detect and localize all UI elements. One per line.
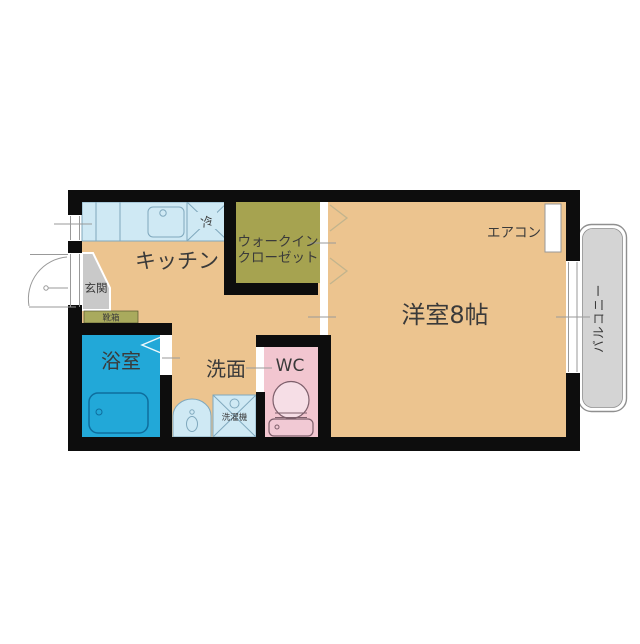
western-room-label: 洋室8帖 <box>401 301 488 329</box>
toilet-icon <box>269 382 313 437</box>
closet-and-hall-opening <box>320 202 328 342</box>
kitchen-bath-wall <box>68 323 172 335</box>
toilet-tank <box>269 419 313 436</box>
wc-top-wall <box>256 335 331 347</box>
washing-machine-icon: 洗濯機 <box>213 395 256 437</box>
wc-door-opening <box>256 347 264 392</box>
door-swing-arc <box>28 257 67 306</box>
closet-label-line1: ウォークイン <box>238 234 319 250</box>
washing-machine-label: 洗濯機 <box>222 412 248 423</box>
closet-bottom-wall <box>224 283 318 295</box>
wall-top <box>68 190 580 202</box>
closet-label-line2: クローゼット <box>238 250 319 266</box>
bath-right-wall <box>160 375 172 437</box>
entrance-door-icon <box>28 254 79 307</box>
door-knob-dot <box>44 286 48 290</box>
shoe-box-label: 靴箱 <box>102 313 120 324</box>
wc-label: WC <box>276 356 305 376</box>
floor-plan: 冷 洗濯機 <box>0 0 640 640</box>
kitchen-counter-icon <box>82 202 187 241</box>
bathroom-door-opening <box>160 335 172 375</box>
floor-plan-page: 冷 洗濯機 <box>0 0 640 640</box>
closet-left-wall <box>224 202 236 295</box>
washroom-label: 洗面 <box>206 357 246 381</box>
wall-right-lower <box>566 373 580 437</box>
washbasin-icon <box>173 399 211 437</box>
air-conditioner-icon <box>545 204 561 252</box>
balcony-label: バルコニー <box>591 283 606 353</box>
kitchen-label: キッチン <box>135 249 219 273</box>
wc-left-wall <box>256 392 265 437</box>
entrance-label: 玄関 <box>85 281 108 295</box>
air-conditioner-label: エアコン <box>487 225 541 241</box>
bathroom-label: 浴室 <box>101 349 141 373</box>
refrigerator-icon: 冷 <box>187 202 228 241</box>
wall-bottom <box>68 437 580 451</box>
wall-left-mid <box>68 241 82 253</box>
wall-right-upper <box>566 202 580 261</box>
counter <box>82 202 187 241</box>
hall-room-wall <box>318 342 331 437</box>
wall-left-upper <box>68 202 82 215</box>
